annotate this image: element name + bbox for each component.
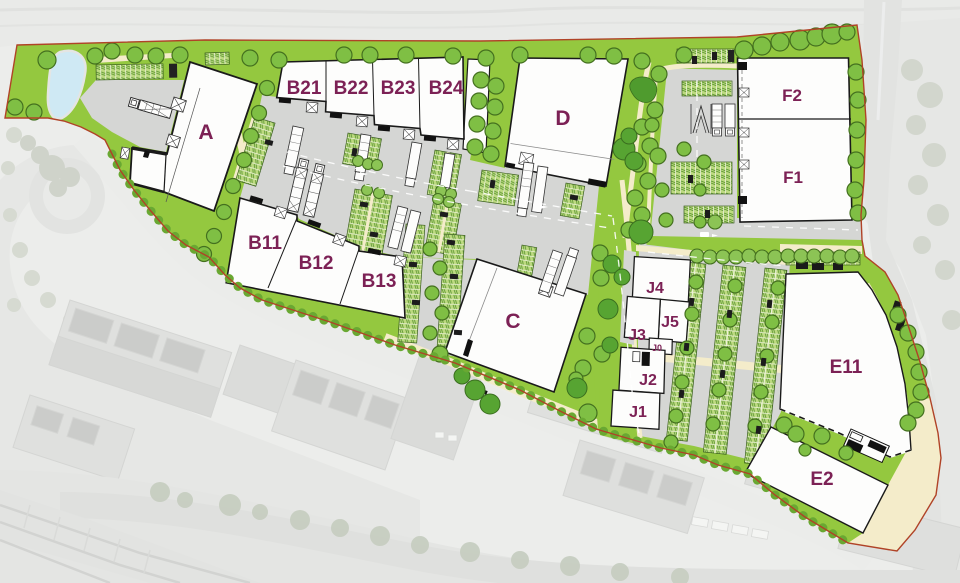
svg-text:B21: B21 (287, 78, 322, 99)
svg-text:B23: B23 (381, 78, 416, 99)
svg-text:J5: J5 (661, 314, 679, 331)
svg-text:F2: F2 (782, 86, 802, 105)
svg-text:J3: J3 (628, 327, 646, 344)
svg-text:B22: B22 (334, 78, 369, 99)
svg-text:B24: B24 (429, 78, 464, 99)
svg-text:F1: F1 (783, 168, 803, 187)
svg-text:B11: B11 (248, 233, 282, 254)
svg-text:B12: B12 (299, 253, 334, 274)
svg-text:B13: B13 (362, 271, 397, 292)
svg-text:E11: E11 (830, 357, 863, 378)
svg-text:D: D (555, 107, 570, 130)
svg-text:E2: E2 (810, 469, 833, 490)
svg-text:J2: J2 (639, 372, 657, 389)
svg-text:C: C (505, 310, 520, 333)
svg-text:J0: J0 (652, 343, 662, 353)
svg-text:J4: J4 (646, 280, 664, 297)
svg-text:A: A (198, 121, 213, 144)
svg-text:J1: J1 (629, 404, 647, 421)
